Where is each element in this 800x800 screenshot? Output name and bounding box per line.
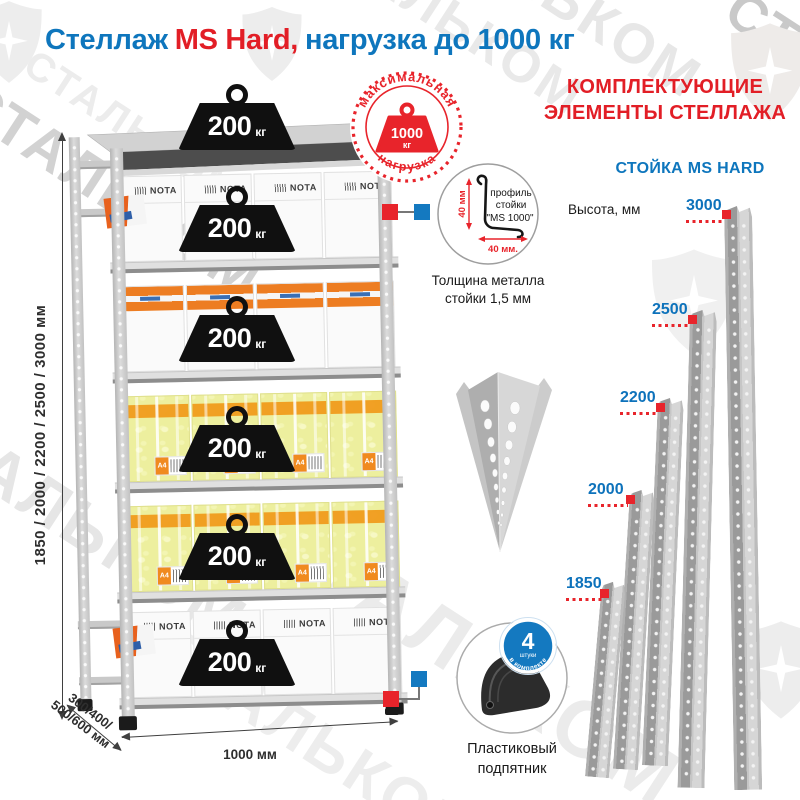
qty-badge: 4 штуки в комплекте — [498, 616, 558, 676]
leader-marker — [688, 315, 697, 324]
height-dimension-line — [62, 140, 63, 712]
load-unit: кг — [255, 661, 266, 675]
load-value: 200 — [208, 323, 252, 354]
shield-logo-watermark — [0, 0, 44, 84]
weight-handle-icon — [226, 620, 248, 642]
load-value: 200 — [208, 541, 252, 572]
load-unit: кг — [255, 447, 266, 461]
shelf-load-weight: 200кг — [177, 514, 297, 580]
shelf-load-weight: 200кг — [177, 186, 297, 252]
page-title: СтеллажMS Hard,нагрузка до 1000 кг — [45, 24, 575, 57]
post-height-label: 3000 — [686, 197, 726, 215]
infographic-stage: СТАЛЬКОМ СТАЛЬКОМ СТАЛЬКОМ СТАЛЬКОМ СТАЛ… — [0, 0, 800, 800]
post-2500 — [677, 310, 717, 789]
profile-caption-line1: профиль — [490, 187, 531, 199]
weight-handle-icon — [226, 186, 248, 208]
weight-handle-icon — [226, 406, 248, 428]
post-height-label: 2500 — [652, 301, 692, 319]
paper-format-label: A4 — [296, 564, 309, 581]
callout-marker-red — [382, 204, 398, 220]
profile-horizontal-dim-label: 40 мм. — [488, 244, 518, 255]
width-dimension-label: 1000 мм — [205, 747, 295, 762]
load-value: 200 — [208, 433, 252, 464]
load-value: 200 — [208, 647, 252, 678]
leader-dots — [652, 324, 690, 327]
leader-marker — [656, 403, 665, 412]
weight-handle-icon — [226, 514, 248, 536]
paper-format-label: A4 — [365, 563, 378, 580]
qty-unit: штуки — [520, 653, 537, 659]
components-subheading: СТОЙКА MS HARD — [565, 160, 800, 178]
profile-vertical-dim-label: 40 мм — [457, 190, 468, 217]
callout-marker-red — [383, 691, 399, 707]
weight-handle-icon — [226, 84, 248, 106]
paper-format-label: A4 — [158, 567, 171, 584]
box-brand-label: NOTA — [150, 185, 177, 196]
leader-marker — [600, 589, 609, 598]
load-unit: кг — [255, 337, 266, 351]
paper-format-label: A4 — [155, 457, 168, 474]
post-height-label: 2200 — [620, 389, 660, 407]
leader-marker — [722, 210, 731, 219]
title-model: MS Hard, — [175, 24, 298, 56]
leader-dots — [620, 412, 658, 415]
components-heading-line2: ЭЛЕМЕНТЫ СТЕЛЛАЖА — [540, 102, 790, 125]
rack-foot — [385, 708, 399, 715]
callout-marker-blue — [411, 671, 427, 687]
plastic-foot-label-line1: Пластиковый — [432, 740, 592, 760]
post-3000 — [724, 206, 762, 790]
rack-post-back-left — [69, 137, 92, 703]
load-unit: кг — [255, 125, 266, 139]
leader-dots — [566, 598, 602, 601]
height-column-label: Высота, мм — [568, 202, 640, 217]
qty-value: 4 — [522, 628, 535, 654]
paper-format-label: A4 — [362, 453, 375, 470]
shelf-load-weight: 200кг — [177, 296, 297, 362]
load-value: 200 — [208, 213, 252, 244]
max-load-stamp-badge: максимальная нагрузка 1000 кг — [347, 67, 467, 187]
barcode — [311, 566, 324, 579]
leader-marker — [626, 495, 635, 504]
corner-post-perspective — [448, 360, 568, 570]
components-heading-line1: КОМПЛЕКТУЮЩИЕ — [540, 76, 790, 99]
callout-line — [399, 698, 420, 700]
barcode — [354, 618, 366, 626]
load-unit: кг — [255, 555, 266, 569]
weight-handle-icon — [226, 296, 248, 318]
plastic-foot-label: Пластиковый подпятник — [432, 740, 592, 779]
thickness-note-line1: Толщина металла — [412, 272, 564, 290]
thickness-note: Толщина металла стойки 1,5 мм — [412, 272, 564, 308]
leader-dots — [588, 504, 628, 507]
profile-caption-line2: стойки — [496, 200, 527, 211]
badge-load-unit: кг — [403, 140, 412, 150]
box-brand-label: NOTA — [299, 618, 326, 629]
height-dimension-label: 1850 / 2000 / 2200 / 2500 / 3000 мм — [32, 275, 52, 595]
shelf-load-weight: 200кг — [177, 406, 297, 472]
load-value: 200 — [208, 111, 252, 142]
title-load: нагрузка до 1000 кг — [305, 24, 575, 56]
callout-marker-blue — [414, 204, 430, 220]
plastic-foot-label-line2: подпятник — [432, 760, 592, 780]
shelf-load-weight: 200кг — [177, 620, 297, 686]
load-unit: кг — [255, 227, 266, 241]
title-product: Стеллаж — [45, 24, 168, 56]
post-height-label: 2000 — [588, 481, 628, 499]
thickness-note-line2: стойки 1,5 мм — [412, 290, 564, 308]
profile-caption-line3: "MS 1000" — [486, 213, 534, 224]
barcode — [308, 456, 321, 469]
shelf-load-weight: 200кг — [177, 84, 297, 150]
leader-dots — [686, 220, 724, 223]
